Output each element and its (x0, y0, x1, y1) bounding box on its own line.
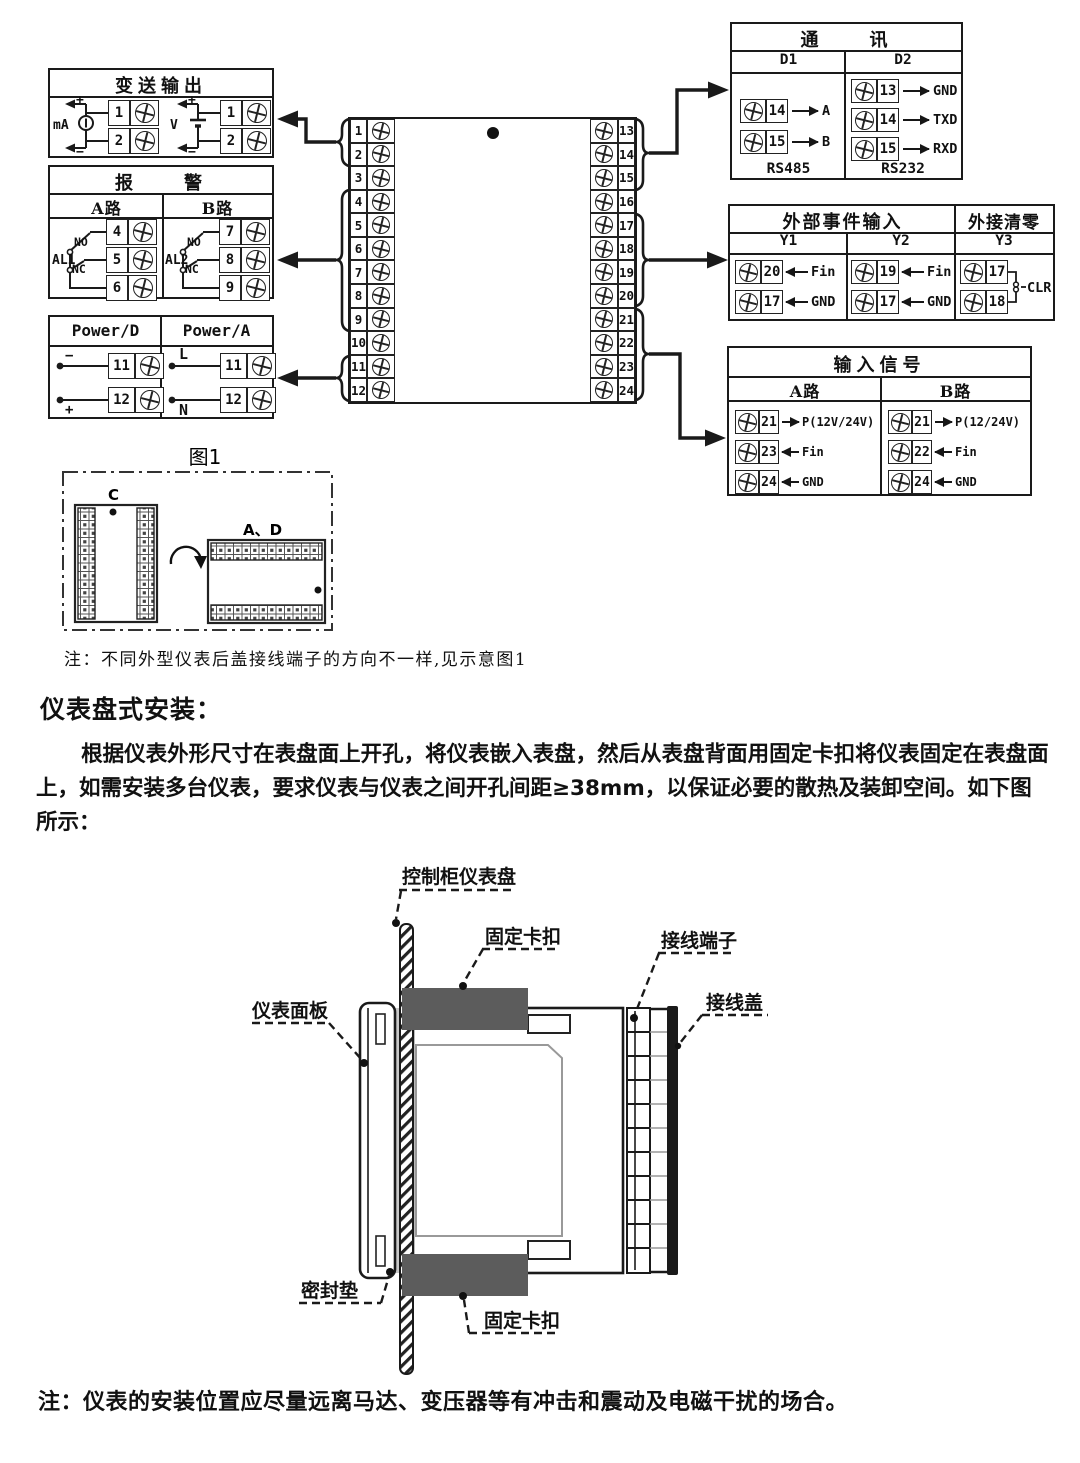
terminal-number: 7 (219, 219, 241, 245)
screw-icon (247, 131, 267, 151)
terminal-row: 23 (590, 355, 635, 379)
screw-cell (367, 355, 395, 379)
screw-cell (851, 260, 877, 284)
terminal-number: 21 (618, 308, 635, 332)
terminal-number: 6 (350, 237, 367, 261)
protocol-label: RS232 (845, 161, 961, 177)
manual-page: { "wiring": { "transmitter": { "title": … (0, 0, 1080, 1463)
terminal-number: 18 (618, 237, 635, 261)
terminal-row: 14 A (740, 99, 830, 123)
pilot-dot (110, 509, 117, 516)
terminal-row: 11 (350, 355, 395, 379)
signal-label: GND (927, 294, 951, 310)
label-fixing-clip-top: 固定卡扣 (485, 925, 561, 948)
terminal-number: 24 (759, 470, 779, 494)
polarity-plus: + (188, 94, 196, 107)
terminal-row: 17 (590, 213, 635, 237)
screw-cell (590, 355, 618, 379)
screw-cell (590, 378, 618, 402)
label-fixing-clip-bottom: 固定卡扣 (484, 1309, 560, 1332)
screw-cell (367, 308, 395, 332)
screw-icon (372, 240, 390, 258)
terminal: 2 (108, 128, 159, 154)
screw-icon (372, 169, 390, 187)
clear-label: CLR (1027, 280, 1051, 296)
column-header: Power/D (50, 321, 161, 340)
screw-icon (738, 443, 757, 462)
communication-box: 通 讯 D1 D2 14 A 15 B 13 GND (730, 22, 963, 180)
screw-icon (964, 263, 983, 282)
screw-cell (367, 213, 395, 237)
terminal: 1 (220, 100, 271, 126)
signal-label: Fin (811, 264, 835, 280)
screw-icon (372, 193, 390, 211)
terminal-row: 15 B (740, 130, 830, 154)
meter-inner (416, 1045, 562, 1236)
screw-cell (242, 100, 271, 126)
nc-label: NC (185, 264, 199, 276)
wire-arrow-icon (903, 148, 929, 150)
wire-arrow-icon (903, 119, 929, 121)
wire-arrow-icon (786, 271, 808, 273)
terminal: 24 (888, 470, 932, 494)
wire-arrow-icon (935, 481, 952, 483)
terminal-number: 15 (618, 166, 635, 190)
screw-cell (367, 143, 395, 167)
signal-label: GND (811, 294, 835, 310)
screw-icon (739, 293, 758, 312)
screw-cell (367, 378, 395, 402)
terminal-row: 13 (590, 119, 635, 143)
terminal: 14 (851, 108, 899, 132)
screw-cell (590, 213, 618, 237)
screw-cell (241, 219, 270, 245)
terminal-number: 19 (877, 260, 899, 284)
signal-label: P(12/24V) (955, 415, 1020, 429)
y2-rows: 19 Fin 17 GND (851, 260, 951, 314)
terminal-row: 8 (350, 284, 395, 308)
screw-cell (367, 119, 395, 143)
screw-cell (740, 99, 766, 123)
rotate-arrow-icon (171, 547, 201, 564)
pilot-dot (487, 127, 499, 139)
terminal-row: 20 Fin (735, 260, 835, 284)
terminal: 15 (851, 137, 899, 161)
neutral-sign: N (179, 403, 188, 418)
y1-rows: 20 Fin 17 GND (735, 260, 835, 314)
screw-icon (739, 263, 758, 282)
screw-icon (372, 358, 390, 376)
terminal-number: 15 (766, 130, 788, 154)
terminal: 14 (740, 99, 788, 123)
no-label: NO (187, 237, 201, 249)
terminal-number: 14 (618, 143, 635, 167)
terminal-row: 21 P(12/24V) (888, 410, 1020, 434)
fixing-clip-bottom (402, 1254, 528, 1296)
box-title: 外接清零 (955, 208, 1053, 233)
screw-cell (590, 308, 618, 332)
screw-icon (372, 287, 390, 305)
terminal-number: 14 (877, 108, 899, 132)
terminal-number: 1 (220, 100, 242, 126)
terminal: 18 (960, 290, 1008, 314)
terminal-number: 20 (761, 260, 783, 284)
terminal-row: 12 (350, 378, 395, 402)
polarity-sign: − (65, 349, 73, 363)
terminal: 17 (960, 260, 1008, 284)
terminal-number: 5 (350, 213, 367, 237)
screw-icon (140, 390, 160, 410)
box-title: 报 警 (50, 169, 272, 195)
terminal: 23 (735, 440, 779, 464)
column-header: Y2 (847, 233, 955, 249)
signal-label: Fin (927, 264, 951, 280)
screw-icon (595, 216, 613, 234)
input-signal-box: 输入信号 A路 B路 21 P(12V/24V) 23 Fin 24 GND (727, 346, 1032, 496)
terminal-number: 13 (877, 79, 899, 103)
polarity-minus: − (76, 146, 84, 159)
terminal-row: 10 (350, 331, 395, 355)
column-header: Power/A (161, 321, 272, 340)
screw-cell (735, 290, 761, 314)
label-gasket: 密封垫 (301, 1279, 358, 1302)
terminal-number: 5 (106, 247, 128, 273)
section-heading: 仪表盘式安装： (40, 690, 222, 726)
column-header: Y3 (955, 233, 1053, 249)
terminal-row: 24 (590, 378, 635, 402)
terminal-row: 6 (350, 237, 395, 261)
terminal-number: 8 (219, 247, 241, 273)
screw-icon (595, 287, 613, 305)
screw-cell (590, 284, 618, 308)
terminal: 4 (106, 219, 157, 245)
terminal: 1 (108, 100, 159, 126)
label-front-panel: 仪表面板 (251, 999, 329, 1022)
screw-cell (735, 440, 759, 464)
terminal-row: 5 (350, 213, 395, 237)
terminal: 24 (735, 470, 779, 494)
signal-label: GND (802, 475, 824, 489)
screw-icon (964, 293, 983, 312)
screw-cell (241, 275, 270, 301)
column-header: B路 (881, 378, 1030, 402)
signal-label: P(12V/24V) (802, 415, 874, 429)
screw-cell (888, 410, 912, 434)
screw-icon (855, 293, 874, 312)
divider (732, 72, 961, 74)
line-sign: L (179, 347, 188, 362)
install-paragraph: 根据仪表外形尺寸在表盘面上开孔，将仪表嵌入表盘，然后从表盘背面用固定卡扣将仪表固… (36, 738, 1050, 840)
screw-cell (367, 284, 395, 308)
terminal-number: 1 (350, 119, 367, 143)
terminal: 19 (851, 260, 899, 284)
figure-note: 注：不同外型仪表后盖接线端子的方向不一样,见示意图1 (64, 645, 527, 670)
screw-icon (595, 169, 613, 187)
screw-icon (595, 381, 613, 399)
wire-arrow-icon (792, 110, 818, 112)
screw-cell (740, 130, 766, 154)
screw-icon (855, 111, 874, 130)
terminal-number: 21 (912, 410, 932, 434)
screw-cell (247, 353, 276, 379)
terminal: 12 (108, 387, 164, 413)
terminal-number: 12 (220, 387, 247, 413)
screw-icon (595, 145, 613, 163)
terminal: 17 (735, 290, 783, 314)
polarity-sign: + (65, 403, 73, 417)
screw-icon (738, 473, 757, 492)
terminal-number: 2 (220, 128, 242, 154)
terminal-number: 10 (350, 331, 367, 355)
label-cabinet-panel: 控制柜仪表盘 (402, 865, 516, 888)
terminal-row: 7 (350, 260, 395, 284)
terminal-row: 19 (590, 260, 635, 284)
terminal-row: 14 (590, 143, 635, 167)
screw-cell (590, 119, 618, 143)
terminal-number: 22 (912, 440, 932, 464)
screw-cell (590, 190, 618, 214)
alarm-box: 报 警 A路 B路 AL1 NO NC 4 5 6 AL2 NO NC 7 8 … (48, 165, 274, 299)
terminal: 8 (219, 247, 270, 273)
terminal-number: 13 (618, 119, 635, 143)
terminal-row: 22 (590, 331, 635, 355)
screw-icon (595, 263, 613, 281)
screw-icon (246, 222, 266, 242)
wire-arrow-icon (782, 481, 799, 483)
polarity-plus: + (76, 94, 84, 107)
screw-cell (851, 290, 877, 314)
screw-icon (891, 443, 910, 462)
label-terminal: 接线端子 (661, 929, 737, 952)
signal-label: Fin (955, 445, 977, 459)
terminal-row: 22 Fin (888, 440, 1020, 464)
screw-icon (595, 122, 613, 140)
screw-icon (595, 358, 613, 376)
screw-cell (128, 247, 157, 273)
signal-label: A (822, 103, 830, 119)
screw-icon (372, 310, 390, 328)
divider (880, 376, 882, 494)
terminal-row: 4 (350, 190, 395, 214)
screw-cell (735, 470, 759, 494)
terminal-number: 17 (986, 260, 1008, 284)
terminal-number: 9 (350, 308, 367, 332)
screw-icon (372, 122, 390, 140)
channel-a-rows: 21 P(12V/24V) 23 Fin 24 GND (735, 410, 874, 494)
terminal-number: 23 (618, 355, 635, 379)
terminal: 21 (735, 410, 779, 434)
terminal: 2 (220, 128, 271, 154)
terminal: 6 (106, 275, 157, 301)
screw-cell (242, 128, 271, 154)
screw-cell (135, 387, 164, 413)
terminal-row: 2 (350, 143, 395, 167)
terminal-number: 21 (759, 410, 779, 434)
terminal-strip-left: 1 2 3 4 5 6 (350, 119, 395, 402)
screw-icon (595, 310, 613, 328)
screw-cell (367, 237, 395, 261)
terminal-row: 17 GND (851, 290, 951, 314)
screw-icon (372, 216, 390, 234)
column-header: D2 (845, 52, 961, 68)
terminal: 12 (220, 387, 276, 413)
d1-rows: 14 A 15 B (740, 99, 830, 154)
terminal-fins (650, 1032, 667, 1248)
terminal-number: 4 (350, 190, 367, 214)
terminal-row: 9 (350, 308, 395, 332)
terminal-number: 7 (350, 260, 367, 284)
terminal-number: 15 (877, 137, 899, 161)
installation-figure: 控制柜仪表盘 固定卡扣 接线端子 接线盖 仪表面板 密封垫 固定卡扣 (240, 858, 800, 1388)
screw-icon (744, 133, 763, 152)
screw-icon (891, 473, 910, 492)
screw-cell (247, 387, 276, 413)
terminal-row: 16 (590, 190, 635, 214)
screw-cell (241, 247, 270, 273)
terminal-number: 1 (108, 100, 130, 126)
column-header: B路 (163, 195, 272, 219)
y3-rows: 17 18 (960, 260, 1008, 314)
terminal-number: 19 (618, 260, 635, 284)
terminal-number: 18 (986, 290, 1008, 314)
screw-icon (595, 240, 613, 258)
terminal-row: 17 GND (735, 290, 835, 314)
terminal-number: 9 (219, 275, 241, 301)
pilot-dot (315, 587, 322, 594)
terminal-row: 17 (960, 260, 1008, 284)
terminal: 17 (851, 290, 899, 314)
protocol-label: RS485 (732, 161, 845, 177)
terminal-row: 14 TXD (851, 108, 957, 132)
screw-icon (738, 413, 757, 432)
screw-icon (135, 103, 155, 123)
polarity-minus: − (188, 146, 196, 159)
screw-cell (128, 275, 157, 301)
wire-arrow-icon (902, 301, 924, 303)
signal-label: RXD (933, 141, 957, 157)
terminal-number: 12 (108, 387, 135, 413)
terminal-row: 24 GND (888, 470, 1020, 494)
column-header: Y1 (730, 233, 847, 249)
screw-cell (367, 331, 395, 355)
screw-icon (595, 334, 613, 352)
terminal-number: 24 (618, 378, 635, 402)
terminal-number: 11 (108, 353, 135, 379)
wire-arrow-icon (902, 271, 924, 273)
footer-note: 注：仪表的安装位置应尽量远离马达、变压器等有冲击和震动及电磁干扰的场合。 (38, 1384, 848, 1416)
rear-terminal-block: 1 2 3 4 5 6 (348, 117, 637, 404)
terminal-number: 11 (220, 353, 247, 379)
screw-icon (247, 103, 267, 123)
screw-icon (140, 356, 160, 376)
terminal: 11 (108, 353, 164, 379)
terminal-row: 13 GND (851, 79, 957, 103)
terminal-number: 16 (618, 190, 635, 214)
terminal-row: 3 (350, 166, 395, 190)
column-header: A路 (729, 378, 881, 402)
terminal: 9 (219, 275, 270, 301)
no-label: NO (74, 237, 88, 249)
screw-icon (855, 263, 874, 282)
divider (846, 232, 848, 319)
screw-icon (252, 390, 272, 410)
terminal-row: 20 (590, 284, 635, 308)
terminal-number: 8 (350, 284, 367, 308)
screw-icon (133, 278, 153, 298)
terminal-row: 21 P(12V/24V) (735, 410, 874, 434)
figure-1: 图1 C A、D (55, 444, 345, 639)
ma-label: mA (53, 119, 69, 132)
signal-label: B (822, 134, 830, 150)
divider (844, 50, 846, 178)
signal-label: GND (933, 83, 957, 99)
box-title: 输入信号 (729, 351, 1030, 377)
screw-cell (590, 237, 618, 261)
case-ad-label: A、D (243, 521, 282, 539)
screw-cell (735, 410, 759, 434)
divider (162, 193, 164, 297)
screw-cell (735, 260, 761, 284)
d2-rows: 13 GND 14 TXD 15 RXD (851, 79, 957, 161)
terminal-ladder (627, 1008, 650, 1273)
wire-arrow-icon (782, 421, 799, 423)
screw-cell (367, 190, 395, 214)
screw-cell (851, 137, 877, 161)
terminal-number: 3 (350, 166, 367, 190)
screw-cell (128, 219, 157, 245)
divider (730, 253, 1053, 255)
divider (954, 206, 956, 319)
channel-b-rows: 21 P(12/24V) 22 Fin 24 GND (888, 410, 1020, 494)
wire-arrow-icon (786, 301, 808, 303)
terminal-row: 19 Fin (851, 260, 951, 284)
screw-icon (595, 193, 613, 211)
terminal: 20 (735, 260, 783, 284)
terminal-strip-right: 13 14 15 16 17 18 (590, 119, 635, 402)
screw-cell (590, 143, 618, 167)
screw-icon (135, 131, 155, 151)
terminal-number: 20 (618, 284, 635, 308)
screw-cell (590, 331, 618, 355)
screw-cell (960, 260, 986, 284)
signal-label: GND (955, 475, 977, 489)
screw-icon (372, 381, 390, 399)
column-header: A路 (50, 195, 163, 219)
screw-cell (367, 166, 395, 190)
screw-icon (744, 102, 763, 121)
power-box: Power/D Power/A − + 11 12 L N 11 12 (48, 315, 274, 419)
terminal-number: 24 (912, 470, 932, 494)
screw-icon (891, 413, 910, 432)
terminal-row: 23 Fin (735, 440, 874, 464)
label-cover: 接线盖 (706, 991, 763, 1014)
screw-cell (367, 260, 395, 284)
terminal-number: 2 (108, 128, 130, 154)
signal-label: TXD (933, 112, 957, 128)
terminal: 7 (219, 219, 270, 245)
terminal-number: 6 (106, 275, 128, 301)
terminal-number: 14 (766, 99, 788, 123)
terminal: 21 (888, 410, 932, 434)
terminal-row: 18 (960, 290, 1008, 314)
screw-icon (133, 222, 153, 242)
nc-label: NC (72, 264, 86, 276)
screw-cell (888, 440, 912, 464)
v-label: V (170, 119, 178, 132)
screw-cell (851, 108, 877, 132)
terminal: 22 (888, 440, 932, 464)
terminal-number: 12 (350, 378, 367, 402)
